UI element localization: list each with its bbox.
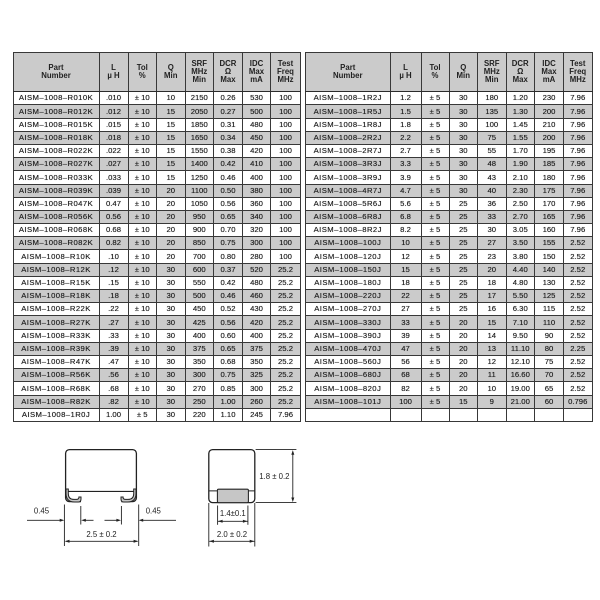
svg-text:1.4±0.1: 1.4±0.1 [220,509,246,518]
svg-text:1.8 ± 0.2: 1.8 ± 0.2 [259,472,289,481]
svg-text:0.45: 0.45 [34,507,50,516]
svg-text:2.5 ± 0.2: 2.5 ± 0.2 [86,530,116,539]
svg-text:2.0 ± 0.2: 2.0 ± 0.2 [217,530,247,539]
svg-text:0.45: 0.45 [146,507,162,516]
